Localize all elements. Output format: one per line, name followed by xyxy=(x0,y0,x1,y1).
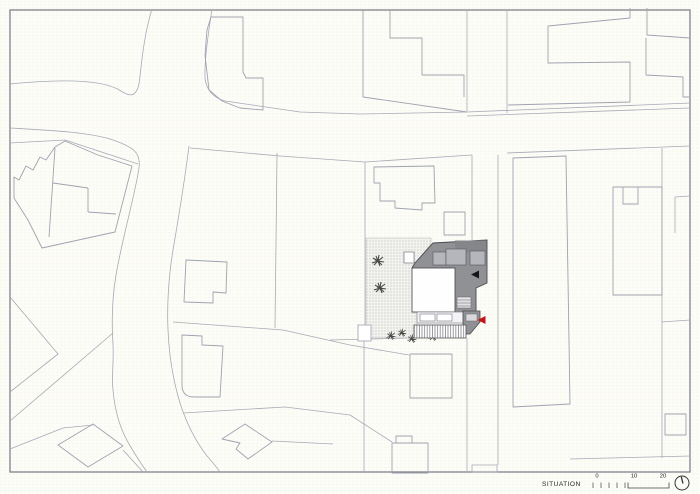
terrace-box xyxy=(437,314,452,321)
terrace-strip xyxy=(417,312,464,323)
roof-panel xyxy=(433,252,446,265)
stairs xyxy=(457,297,471,308)
roof-panel xyxy=(470,251,485,265)
canopy-hatch xyxy=(414,325,466,338)
courtyard xyxy=(412,268,455,312)
site-plan-page: SITUATION 0 10 20 xyxy=(0,0,700,494)
roof-access-box xyxy=(404,252,414,263)
terrace-box xyxy=(466,314,477,321)
scale-label-0: 0 xyxy=(595,474,598,480)
terrace-box xyxy=(420,314,435,321)
situation-label: SITUATION xyxy=(542,481,581,488)
scale-label-10: 10 xyxy=(631,474,637,480)
site-plan-drawing: SITUATION 0 10 20 xyxy=(0,0,700,494)
garden-shed xyxy=(358,325,371,341)
scale-label-20: 20 xyxy=(660,474,666,480)
roof-panel xyxy=(446,249,466,265)
project-site xyxy=(358,238,487,343)
paper-background xyxy=(0,0,700,494)
